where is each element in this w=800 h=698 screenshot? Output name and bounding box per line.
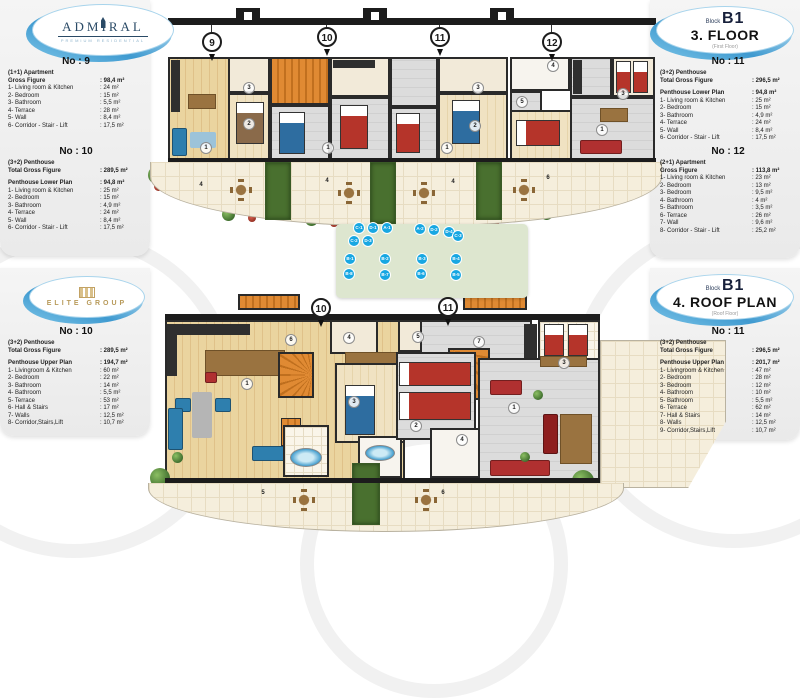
terrace-number: 4: [322, 176, 332, 186]
site-badge: A-1: [381, 222, 393, 234]
bathtub: [365, 445, 395, 461]
planter: [352, 463, 380, 525]
bathtub: [290, 448, 322, 467]
room-bathroom: [430, 428, 482, 478]
room-value: : 15 m²: [100, 195, 144, 203]
site-badge: B-3: [416, 253, 428, 265]
block-number: B1: [722, 277, 744, 294]
kitchen-cabinets: [167, 324, 177, 376]
block-label: Block: [706, 286, 721, 292]
room-number: 1: [441, 142, 453, 154]
unit-circle: 11: [430, 27, 450, 47]
room-label: 3- Bathroom: [660, 113, 752, 121]
spec-value: : 289,5 m²: [100, 348, 144, 356]
sofa: [490, 460, 550, 476]
room-label: 8- Corridor,Stairs,Lift: [8, 420, 100, 428]
tv-unit: [543, 414, 558, 454]
sofa: [172, 128, 187, 156]
spec-label: Total Gross Figure: [660, 348, 752, 356]
room-value: : 28 m²: [752, 375, 796, 383]
room-number: 3: [472, 82, 484, 94]
wall: [165, 478, 600, 483]
spec-label: Total Gross Figure: [8, 168, 100, 176]
room-value: : 9,5 m²: [752, 190, 796, 198]
table-set: [296, 492, 312, 508]
site-badge: C-1: [353, 222, 365, 234]
wall: [165, 314, 600, 320]
room-label: 5- Wall: [8, 115, 100, 123]
spec-value: : 94,8 m²: [752, 90, 796, 98]
room-value: : 3,5 m²: [752, 205, 796, 213]
room-label: 1- Living room & Kitchen: [8, 188, 100, 196]
bed: [516, 120, 560, 146]
site-badge: B-1: [344, 253, 356, 265]
spec-type: (1+1) Apartment: [8, 70, 100, 78]
staircase: [270, 57, 330, 105]
room-label: 2- Bedroom: [8, 93, 100, 101]
room-label: 4- Terrace: [660, 120, 752, 128]
room-value: : 5,5 m²: [752, 398, 796, 406]
room-label: 1- Livingroom & Kitchen: [8, 368, 100, 376]
table-set: [341, 185, 357, 201]
dining-table: [600, 108, 628, 122]
spec-value: : 194,7 m²: [100, 360, 144, 368]
arrow-down-icon: [549, 54, 555, 61]
spec-title: No : 11: [660, 326, 796, 337]
room-value: : 53 m²: [100, 398, 144, 406]
bed: [279, 112, 305, 154]
room-label: 4- Bathroom: [660, 198, 752, 206]
room-value: : 15 m²: [100, 93, 144, 101]
room-value: : 24 m²: [100, 85, 144, 93]
spec-type: (3+2) Penthouse: [660, 70, 752, 78]
room-label: 5- Terrace: [8, 398, 100, 406]
room-number: 1: [241, 378, 253, 390]
kitchen-counter: [171, 60, 180, 112]
room-value: : 12,5 m²: [100, 413, 144, 421]
spec-label: Total Gross Figure: [660, 78, 752, 86]
room-value: : 9,6 m²: [752, 220, 796, 228]
room-value: : 17,5 m²: [100, 123, 144, 131]
spec-type: (2+1) Apartment: [660, 160, 752, 168]
room-label: 4- Terrace: [8, 210, 100, 218]
room-value: : 5,5 m²: [100, 390, 144, 398]
room-number: 7: [473, 336, 485, 348]
spec-title: No : 10: [8, 326, 144, 337]
kitchen-counter: [573, 60, 582, 94]
room-number: 3: [243, 82, 255, 94]
room-label: 1- Living room & Kitchen: [660, 175, 752, 183]
room-label: 6- Terrace: [660, 213, 752, 221]
room-value: : 60 m²: [100, 368, 144, 376]
room-label: 7- Walls: [8, 413, 100, 421]
room-label: 4- Bathroom: [8, 390, 100, 398]
spec-value: : 289,5 m²: [100, 168, 144, 176]
block-label: Block: [706, 19, 721, 25]
floor-badge-bottom: Block B1 4. ROOF PLAN (Roof Floor): [654, 274, 796, 324]
room-value: : 5,5 m²: [100, 100, 144, 108]
block-row: Block B1: [706, 277, 745, 295]
room-number: 1: [508, 402, 520, 414]
armchair: [205, 372, 217, 383]
room-label: 3- Bathroom: [8, 100, 100, 108]
terrace-number: 6: [438, 488, 448, 498]
room-value: : 12 m²: [752, 383, 796, 391]
armchair: [215, 398, 231, 412]
unit-circle: 9: [202, 32, 222, 52]
sofa: [490, 380, 522, 395]
admiral-tagline: PREMIUM RESIDENTIAL: [61, 38, 145, 43]
spec-label: Gross Figure: [8, 78, 100, 86]
room-value: : 8,4 m²: [100, 218, 144, 226]
room-label: 5- Bathroom: [660, 398, 752, 406]
spec-label: Total Gross Figure: [8, 348, 100, 356]
unit-circle: 11: [438, 297, 458, 317]
room-value: : 62 m²: [752, 405, 796, 413]
spec-value: : 94,8 m²: [100, 180, 144, 188]
room-number: 5: [516, 96, 528, 108]
plant: [172, 452, 183, 463]
room-number: 4: [456, 434, 468, 446]
room-label: 7- Wall: [660, 220, 752, 228]
plant: [533, 390, 543, 400]
room-number: 3: [558, 357, 570, 369]
room-value: : 4,9 m²: [100, 203, 144, 211]
unit-circle: 12: [542, 32, 562, 52]
room-label: 3- Bathroom: [8, 203, 100, 211]
room-label: 7- Hall & Stairs: [660, 413, 752, 421]
unit-circle: 10: [317, 27, 337, 47]
site-badge: B-5: [450, 269, 462, 281]
spec-label: Penthouse Upper Plan: [8, 360, 100, 368]
site-badge: D-3: [362, 235, 374, 247]
planter: [265, 162, 291, 220]
room-number: 6: [285, 334, 297, 346]
room-value: : 47 m²: [752, 368, 796, 376]
spec-no-12: No : 12 (2+1) Apartment Gross Figure: 11…: [660, 146, 796, 235]
dining-table: [205, 350, 285, 376]
table-set: [418, 492, 434, 508]
room-label: 6- Corridor - Stair - Lift: [8, 123, 100, 131]
floor-title: 3. FLOOR: [691, 27, 760, 43]
room-label: 2- Bedroom: [660, 183, 752, 191]
room-value: : 28 m²: [100, 108, 144, 116]
spec-value: : 201,7 m²: [752, 360, 796, 368]
terrace-number: 6: [543, 173, 553, 183]
site-badge: D-2: [428, 224, 440, 236]
spec-label: Penthouse Upper Plan: [660, 360, 752, 368]
floor-subtitle: (First Floor): [712, 44, 738, 50]
kitchen-counter: [170, 324, 250, 335]
room-value: : 24 m²: [752, 120, 796, 128]
terrace-number: 5: [258, 488, 268, 498]
room-label: 8- Walls: [660, 420, 752, 428]
room-label: 3- Bedroom: [660, 190, 752, 198]
spec-title: No : 10: [8, 146, 144, 157]
room-number: 5: [412, 331, 424, 343]
room-label: 3- Bathroom: [8, 383, 100, 391]
room-hall: [390, 57, 438, 107]
room-label: 5- Wall: [660, 128, 752, 136]
room-value: : 10,7 m²: [100, 420, 144, 428]
dining-table: [560, 414, 592, 464]
spec-value: : 296,5 m²: [752, 78, 796, 86]
room-value: : 12,5 m²: [752, 420, 796, 428]
elite-name: ELITE GROUP: [47, 300, 127, 307]
room-number: 3: [617, 88, 629, 100]
arrow-down-icon: [437, 49, 443, 56]
table-set: [416, 185, 432, 201]
room-label: 8- Corridor - Stair - Lift: [660, 228, 752, 236]
arrow-down-icon: [324, 49, 330, 56]
room-label: 1- Living room & Kitchen: [8, 85, 100, 93]
table-set: [233, 182, 249, 198]
site-badge: C-2: [348, 235, 360, 247]
room-label: 5- Bathroom: [660, 205, 752, 213]
room-value: : 10,7 m²: [752, 428, 796, 436]
spec-type: (3+2) Penthouse: [660, 340, 752, 348]
floor-badge-top: Block B1 3. FLOOR (First Floor): [654, 6, 796, 58]
table-set: [516, 182, 532, 198]
stair-shaft-notch: [498, 12, 506, 20]
room-label: 6- Corridor - Stair - Lift: [8, 225, 100, 233]
spec-value: : 113,8 m²: [752, 168, 796, 176]
bed: [633, 61, 648, 93]
planter: [370, 162, 396, 224]
spec-type: (3+2) Penthouse: [8, 160, 100, 168]
room-value: : 17,5 m²: [752, 135, 796, 143]
room-label: 2- Bedroom: [660, 105, 752, 113]
unit-circle: 10: [311, 298, 331, 318]
room-value: : 26 m²: [752, 213, 796, 221]
site-badge: D-1: [367, 222, 379, 234]
spec-title: No : 11: [660, 56, 796, 67]
dining-table: [188, 94, 216, 109]
room-number: 1: [200, 142, 212, 154]
elite-logo-face: ELITE GROUP: [29, 276, 145, 318]
arrow-down-icon: [318, 320, 324, 327]
spec-label: Penthouse Lower Plan: [8, 180, 100, 188]
room-value: : 4 m²: [752, 198, 796, 206]
kitchen-counter: [333, 60, 375, 68]
room-value: : 17 m²: [100, 405, 144, 413]
sun-lounger: [568, 324, 588, 356]
room-value: : 10 m²: [752, 390, 796, 398]
room-value: : 8,4 m²: [100, 115, 144, 123]
bed: [399, 362, 471, 386]
room-value: : 23 m²: [752, 175, 796, 183]
sofa: [580, 140, 622, 154]
wall: [168, 158, 656, 162]
spec-label: Penthouse Lower Plan: [660, 90, 752, 98]
room-value: : 17,5 m²: [100, 225, 144, 233]
site-badge: A-2: [414, 223, 426, 235]
site-badge: B-4: [450, 253, 462, 265]
room-number: 2: [469, 120, 481, 132]
room-label: 9- Corridor,Stairs,Lift: [660, 428, 752, 436]
room-label: 2- Bedroom: [8, 375, 100, 383]
spec-title: No : 12: [660, 146, 796, 157]
roof-title: 4. ROOF PLAN: [673, 294, 777, 310]
room-number: 2: [410, 420, 422, 432]
stair-shaft-notch: [244, 12, 252, 20]
sun-lounger: [544, 324, 564, 356]
planter: [476, 162, 502, 220]
site-badge: B-7: [379, 269, 391, 281]
room-value: : 8,4 m²: [752, 128, 796, 136]
spec-no-11-lower: No : 11 (3+2) Penthouse Total Gross Figu…: [660, 56, 796, 143]
arrow-down-icon: [445, 319, 451, 326]
room-value: : 14 m²: [100, 383, 144, 391]
room-number: 4: [343, 332, 355, 344]
admiral-logo-face: ADMIRAL PREMIUM RESIDENTIAL: [32, 4, 174, 56]
roof-badge-face: Block B1 4. ROOF PLAN (Roof Floor): [656, 274, 794, 320]
terrace-number: 4: [196, 180, 206, 190]
bed: [396, 113, 420, 153]
room-value: : 4,9 m²: [752, 113, 796, 121]
room-label: 4- Bathroom: [660, 390, 752, 398]
site-badge: C-3: [452, 230, 464, 242]
room-number: 4: [547, 60, 559, 72]
room-label: 2- Bedroom: [8, 195, 100, 203]
room-label: 6- Terrace: [660, 405, 752, 413]
spec-type: (3+2) Penthouse: [8, 340, 100, 348]
room-number: 1: [322, 142, 334, 154]
arrow-down-icon: [209, 54, 215, 61]
spec-no-11-upper: No : 11 (3+2) Penthouse Total Gross Figu…: [660, 326, 796, 435]
block-number: B1: [722, 10, 744, 27]
room-entry: [510, 57, 570, 91]
spec-label: Gross Figure: [660, 168, 752, 176]
room-label: 2- Bedroom: [660, 375, 752, 383]
room-label: 4- Terrace: [8, 108, 100, 116]
room-label: 6- Hall & Stairs: [8, 405, 100, 413]
bed: [399, 392, 471, 420]
rug: [192, 392, 212, 438]
room-number: 1: [596, 124, 608, 136]
sofa: [168, 408, 183, 450]
site-badge: B-8: [343, 268, 355, 280]
building-icon: [79, 287, 95, 298]
room-label: 3- Bedroom: [660, 383, 752, 391]
elite-logo: ELITE GROUP: [27, 276, 147, 322]
spec-no-9: No : 9 (1+1) Apartment Gross Figure: 98,…: [8, 56, 144, 130]
block-row: Block B1: [706, 10, 745, 28]
plant: [520, 452, 530, 462]
room-label: 1- Living room & Kitchen: [660, 98, 752, 106]
room-value: : 25,2 m²: [752, 228, 796, 236]
room-value: : 25 m²: [752, 98, 796, 106]
bed: [340, 105, 368, 149]
spec-no-10-upper: No : 10 (3+2) Penthouse Total Gross Figu…: [8, 326, 144, 428]
room-value: : 15 m²: [752, 105, 796, 113]
stair-shaft-notch: [371, 12, 379, 20]
spec-value: : 296,5 m²: [752, 348, 796, 356]
admiral-logo: ADMIRAL PREMIUM RESIDENTIAL: [30, 4, 176, 60]
terrace-number: 4: [448, 177, 458, 187]
room-value: : 25 m²: [100, 188, 144, 196]
spec-no-10-lower: No : 10 (3+2) Penthouse Total Gross Figu…: [8, 146, 144, 233]
room-value: : 24 m²: [100, 210, 144, 218]
room-label: 1- Livingroom & Kitchen: [660, 368, 752, 376]
room-label: 5- Wall: [8, 218, 100, 226]
room-value: : 13 m²: [752, 183, 796, 191]
spec-title: No : 9: [8, 56, 144, 67]
site-badge: B-6: [415, 268, 427, 280]
spec-value: : 98,4 m²: [100, 78, 144, 86]
floor-badge-face: Block B1 3. FLOOR (First Floor): [656, 6, 794, 54]
room-number: 3: [348, 396, 360, 408]
staircase: [238, 294, 300, 310]
room-number: 2: [243, 118, 255, 130]
roof-subtitle: (Roof Floor): [712, 311, 739, 317]
site-badge: B-2: [379, 253, 391, 265]
room-value: : 14 m²: [752, 413, 796, 421]
bed: [345, 385, 375, 435]
room-label: 6- Corridor - Stair - Lift: [660, 135, 752, 143]
room-value: : 22 m²: [100, 375, 144, 383]
spiral-staircase: [278, 352, 314, 398]
